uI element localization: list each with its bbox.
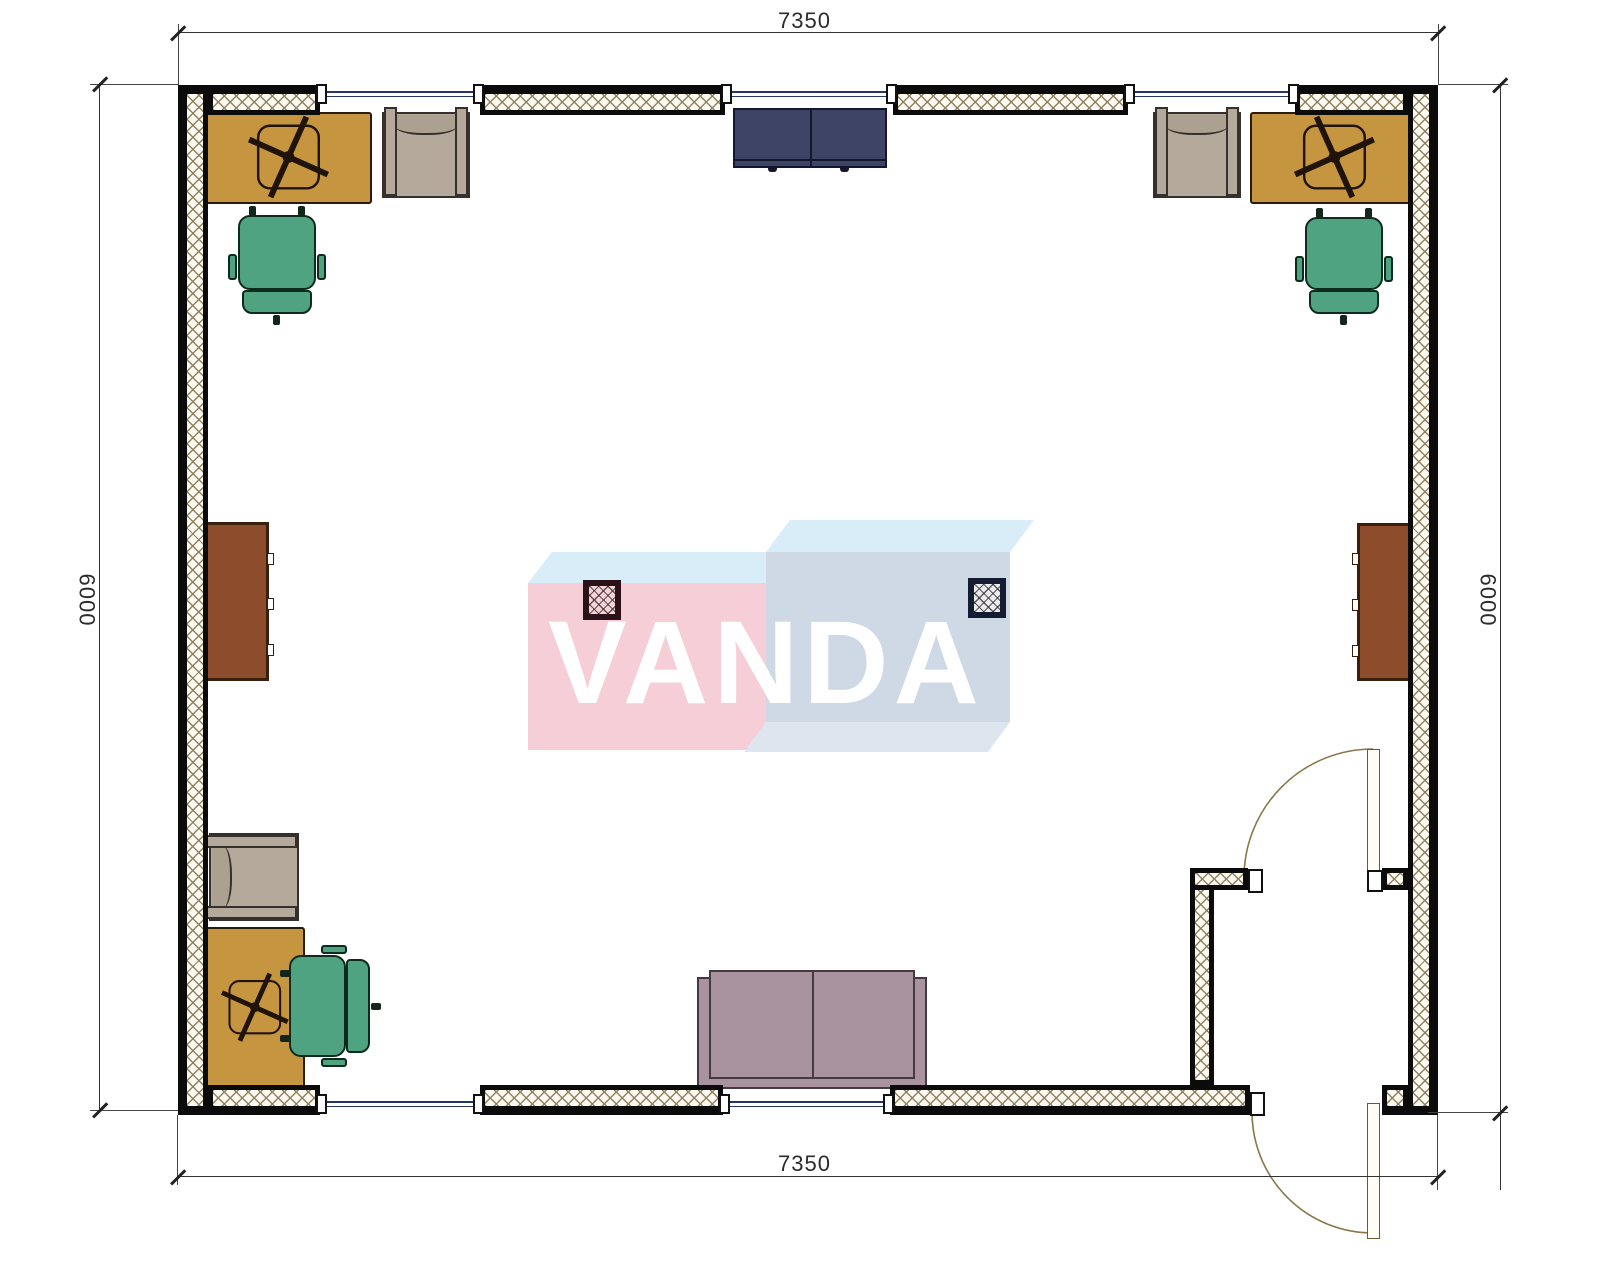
window-glass [325, 1101, 475, 1107]
dimension-label-left: 6000 [73, 574, 99, 627]
window-top-2 [725, 84, 893, 110]
window-glass [730, 91, 888, 97]
interior-door-jamb-left [1248, 869, 1263, 893]
partition-wall-vertical [1190, 868, 1214, 1085]
window-bottom-2 [723, 1094, 890, 1120]
window-jamb [1124, 84, 1135, 104]
extension-line [1428, 1112, 1508, 1113]
window-top-3 [1128, 84, 1295, 110]
window-jamb [886, 84, 897, 104]
dimension-line-right [1500, 83, 1501, 1190]
dimension-label-right: 6000 [1474, 574, 1500, 627]
wall-top-2 [480, 85, 725, 115]
window-jamb [316, 84, 327, 104]
window-jamb [883, 1094, 894, 1114]
wall-top-1 [208, 85, 320, 115]
partition-wall-stub-right [1382, 868, 1408, 890]
interior-door-leaf [1367, 749, 1380, 886]
window-jamb [719, 1094, 730, 1114]
floor-plan-canvas: VANDA [0, 0, 1600, 1280]
extension-line [90, 1110, 178, 1111]
window-glass [728, 1101, 885, 1107]
window-bottom-1 [320, 1094, 480, 1120]
window-jamb [1288, 84, 1299, 104]
entry-door-leaf [1367, 1103, 1380, 1239]
wall-right [1408, 85, 1438, 1115]
dimension-label-top: 7350 [778, 8, 831, 34]
window-jamb [473, 84, 484, 104]
extension-line [90, 84, 178, 85]
interior-door-jamb-right [1367, 870, 1383, 892]
wall-bottom-2 [480, 1085, 723, 1115]
wall-bottom-1 [208, 1085, 320, 1115]
wall-top-4 [1295, 85, 1408, 115]
window-jamb [473, 1094, 484, 1114]
wall-bottom-4 [1382, 1085, 1408, 1115]
wall-bottom-3 [890, 1085, 1250, 1115]
wall-top-3 [893, 85, 1128, 115]
dimension-label-bottom: 7350 [778, 1151, 831, 1177]
partition-wall-stub-left [1190, 868, 1248, 890]
entry-door-jamb-left [1250, 1092, 1265, 1116]
window-glass [1133, 91, 1290, 97]
window-top-1 [320, 84, 480, 110]
window-glass [325, 91, 475, 97]
window-jamb [316, 1094, 327, 1114]
wall-left [178, 85, 208, 1115]
window-jamb [721, 84, 732, 104]
